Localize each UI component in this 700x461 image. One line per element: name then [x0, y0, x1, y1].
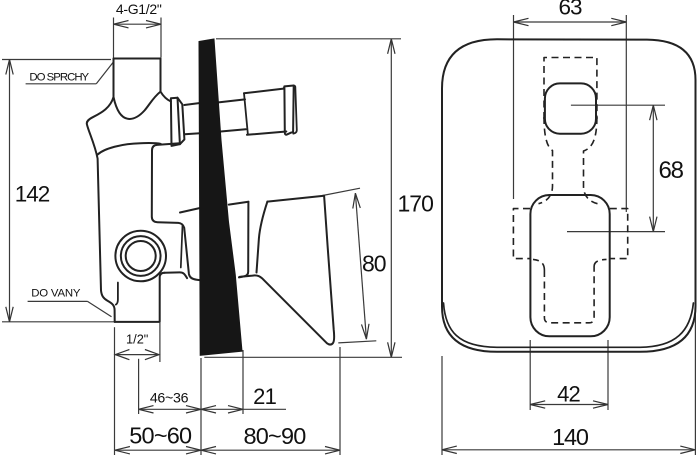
svg-text:80~90: 80~90 — [243, 423, 306, 449]
svg-text:DO SPRCHY: DO SPRCHY — [29, 71, 89, 83]
svg-text:170: 170 — [398, 191, 434, 217]
svg-text:DO VANY: DO VANY — [31, 288, 81, 300]
svg-text:140: 140 — [552, 424, 589, 450]
svg-text:80: 80 — [362, 250, 386, 276]
svg-text:46~36: 46~36 — [150, 391, 189, 407]
svg-text:68: 68 — [658, 157, 683, 184]
svg-text:50~60: 50~60 — [129, 423, 192, 449]
svg-text:4-G1/2": 4-G1/2" — [116, 1, 162, 17]
svg-text:63: 63 — [558, 0, 582, 20]
svg-text:42: 42 — [557, 381, 580, 406]
svg-text:142: 142 — [15, 182, 50, 207]
svg-text:21: 21 — [253, 384, 276, 409]
svg-text:1/2": 1/2" — [126, 332, 148, 347]
